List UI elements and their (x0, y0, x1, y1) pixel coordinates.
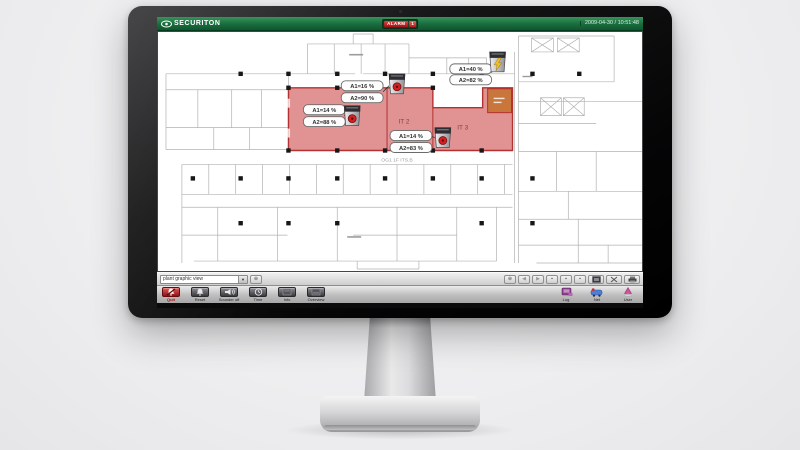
room-label-it3: IT 3 (457, 125, 468, 132)
clock-datetime: 2009-04-30 / 10:51:48 (580, 21, 639, 27)
zoom-button[interactable]: ⊕ (504, 275, 516, 284)
fault-zone-box[interactable] (488, 89, 512, 113)
imac-monitor: SECURITON ALARM 1 2009-04-30 / 10:51:48 (128, 6, 672, 318)
svg-text:A2=90 %: A2=90 % (350, 96, 374, 102)
bell-slash-icon (166, 288, 176, 296)
user-icon (622, 287, 634, 297)
clock-icon (254, 288, 263, 296)
network-button[interactable]: Net (586, 287, 608, 302)
info-button[interactable]: Info (277, 287, 297, 302)
svg-text:A2=82 %: A2=82 % (459, 78, 483, 84)
tile-view-button[interactable]: ▪ (546, 275, 558, 284)
smoke-detector-fault-icon[interactable] (490, 52, 506, 72)
display-icon (311, 288, 321, 296)
webcam-dot (399, 10, 402, 13)
sounder-off-button[interactable]: Sounder off (219, 287, 239, 302)
detector-value-label: A1=14 % (303, 105, 345, 115)
svg-text:A1=40 %: A1=40 % (459, 67, 483, 73)
cut-region-button[interactable] (606, 275, 622, 284)
detector-value-label: A2=82 % (450, 75, 492, 85)
detector-value-label: A2=83 % (390, 143, 432, 153)
smoke-detector-icon[interactable] (344, 106, 360, 126)
application-screen: SECURITON ALARM 1 2009-04-30 / 10:51:48 (157, 17, 643, 308)
smoke-detector-icon[interactable] (435, 128, 451, 148)
overview-button[interactable]: Overview (306, 287, 326, 302)
svg-text:A1=16 %: A1=16 % (350, 84, 374, 90)
print-button[interactable] (624, 275, 640, 284)
quit-alarm-button[interactable]: Quit (161, 287, 181, 302)
view-select-dropdown[interactable]: plant graphic view ▼ (160, 275, 248, 284)
next-view-button[interactable]: ▶ (532, 275, 544, 284)
floor-plan-panel: IT 2 IT 3 OG1 1F ITS.B A1=14 % A2=88 % (157, 31, 643, 272)
floor-label: OG1 1F ITS.B (381, 157, 413, 163)
control-toolbar: Quit Reset (157, 286, 643, 303)
detector-value-label: A2=90 % (341, 93, 383, 103)
screen-bottom-bar (157, 303, 643, 308)
detector-value-label: A1=16 % (341, 81, 383, 91)
logbook-icon (560, 287, 573, 297)
reset-button[interactable]: Reset (190, 287, 210, 302)
alarm-counter-badge[interactable]: ALARM 1 (382, 19, 418, 29)
floor-plan: IT 2 IT 3 OG1 1F ITS.B A1=14 % A2=88 % (158, 32, 642, 271)
tile-view-button[interactable]: ▪ (560, 275, 572, 284)
alarm-count: 1 (409, 21, 416, 27)
securiton-logo: SECURITON (161, 20, 221, 28)
display-icon (282, 288, 292, 296)
fit-screen-icon (592, 276, 601, 283)
svg-text:A1=14 %: A1=14 % (399, 134, 423, 140)
horn-icon (224, 288, 235, 296)
detector-value-label: A2=88 % (303, 117, 345, 127)
svg-text:A2=83 %: A2=83 % (399, 146, 423, 152)
desk-background: SECURITON ALARM 1 2009-04-30 / 10:51:48 (0, 0, 800, 450)
scissors-icon (610, 276, 618, 283)
svg-text:A1=14 %: A1=14 % (312, 108, 336, 114)
smoke-detector-icon[interactable] (389, 74, 405, 94)
printer-icon (628, 276, 637, 283)
alarm-label: ALARM (384, 21, 408, 27)
monitor-stand-neck (364, 308, 436, 402)
refresh-view-button[interactable]: ⊕ (250, 275, 262, 284)
time-button[interactable]: Time (248, 287, 268, 302)
brand-name: SECURITON (174, 20, 221, 27)
fit-screen-button[interactable] (588, 275, 604, 284)
monitor-stand-base (320, 396, 480, 432)
prev-view-button[interactable]: ◀ (518, 275, 530, 284)
app-titlebar: SECURITON ALARM 1 2009-04-30 / 10:51:48 (157, 17, 643, 31)
view-toolbar: plant graphic view ▼ ⊕ ⊕ ◀ ▶ ▪ ▪ ▪ (157, 272, 643, 286)
detector-value-label: A1=40 % (450, 64, 492, 74)
tile-view-button[interactable]: ▪ (574, 275, 586, 284)
user-button[interactable]: User (617, 287, 639, 302)
detector-value-label: A1=14 % (390, 131, 432, 141)
chevron-down-icon[interactable]: ▼ (238, 276, 247, 283)
svg-text:A2=88 %: A2=88 % (312, 120, 336, 126)
securiton-eye-icon (161, 20, 172, 28)
log-button[interactable]: Log (555, 287, 577, 302)
bell-icon (195, 288, 205, 296)
view-select-value: plant graphic view (163, 276, 203, 282)
room-label-it2: IT 2 (398, 119, 409, 126)
network-icon (590, 287, 604, 297)
